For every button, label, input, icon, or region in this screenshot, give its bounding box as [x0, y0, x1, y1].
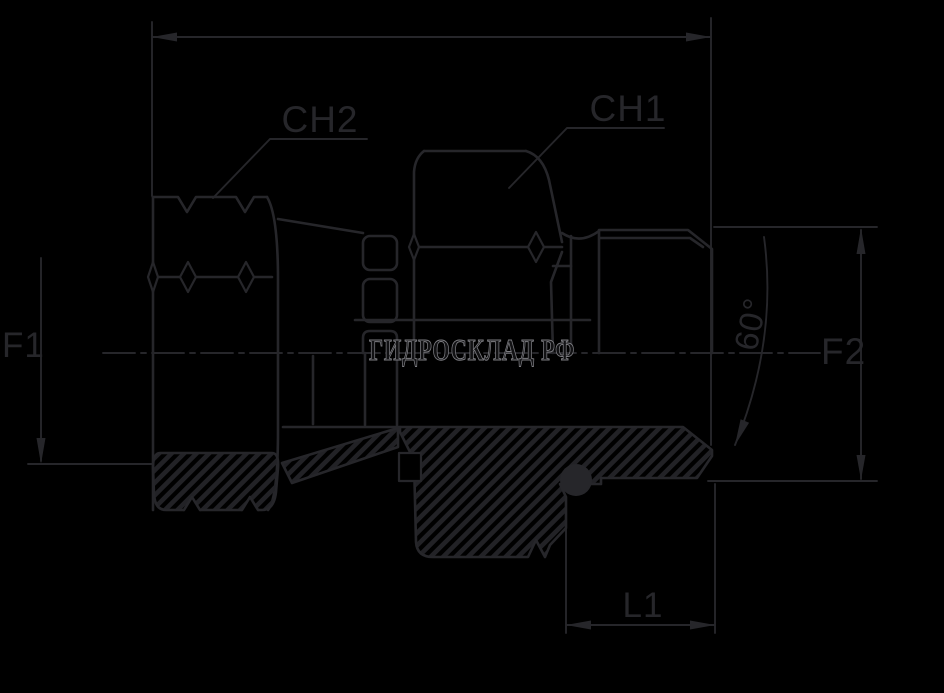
f2-label: F2 [821, 331, 866, 372]
nose-section-hatch [282, 428, 398, 483]
fitting-section-drawing: CH2 CH1 F1 F2 L1 60° [0, 0, 944, 693]
body-hex-outline [409, 151, 571, 353]
thread-relief-groove [399, 453, 421, 481]
l1-label: L1 [623, 586, 664, 625]
technical-drawing-canvas: CH2 CH1 F1 F2 L1 60° [0, 0, 944, 693]
dimension-f1: F1 [2, 258, 152, 464]
f1-label: F1 [2, 326, 45, 365]
dimension-overall-length [152, 18, 711, 445]
male-stud-outline [562, 230, 712, 353]
dimension-ch2: CH2 [213, 99, 367, 198]
nut-section-hatch [153, 453, 278, 510]
dimension-ch1: CH1 [509, 88, 667, 188]
dimension-l1: L1 [566, 484, 715, 633]
dimension-cone-angle: 60° [727, 237, 774, 445]
body-section-hatch [400, 427, 712, 557]
section-lower-half [153, 427, 712, 557]
dimension-f2: F2 [708, 227, 877, 481]
ch2-label: CH2 [281, 99, 358, 140]
angle-label: 60° [727, 294, 774, 353]
ch1-label: CH1 [589, 88, 666, 129]
watermark-text: ГИДРОСКЛАД РФ [369, 332, 575, 367]
o-ring-seal [560, 464, 592, 496]
